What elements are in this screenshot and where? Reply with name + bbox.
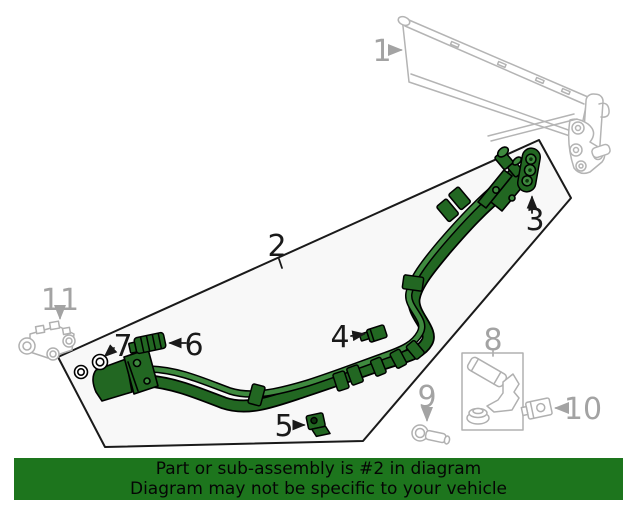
callout-5-label[interactable]: 5 — [274, 409, 293, 444]
callout-11-label[interactable]: 11 — [41, 283, 79, 318]
callout-4-label[interactable]: 4 — [330, 320, 349, 355]
callout-9-label[interactable]: 9 — [417, 380, 436, 415]
callout-1-label[interactable]: 1 — [372, 34, 391, 69]
callout-10-label[interactable]: 10 — [564, 392, 602, 427]
part-10-drawing[interactable] — [521, 398, 553, 421]
part-8-drawing[interactable] — [462, 353, 523, 430]
banner-line-1: Part or sub-assembly is #2 in diagram — [156, 459, 481, 479]
callout-7-label[interactable]: 7 — [113, 329, 132, 364]
parts-diagram-page: 1 2 3 4 5 6 7 8 9 10 11 Part or sub-asse… — [0, 0, 640, 512]
diagram-note-banner: Part or sub-assembly is #2 in diagram Di… — [14, 458, 623, 500]
banner-line-2: Diagram may not be specific to your vehi… — [130, 479, 507, 499]
callout-2-label[interactable]: 2 — [267, 229, 286, 264]
callout-3-label[interactable]: 3 — [525, 203, 544, 238]
diagram-canvas: 1 2 3 4 5 6 7 8 9 10 11 — [0, 0, 640, 512]
part-9-drawing[interactable] — [412, 425, 450, 444]
callout-6-label[interactable]: 6 — [184, 328, 203, 363]
callout-8-label[interactable]: 8 — [483, 323, 502, 358]
